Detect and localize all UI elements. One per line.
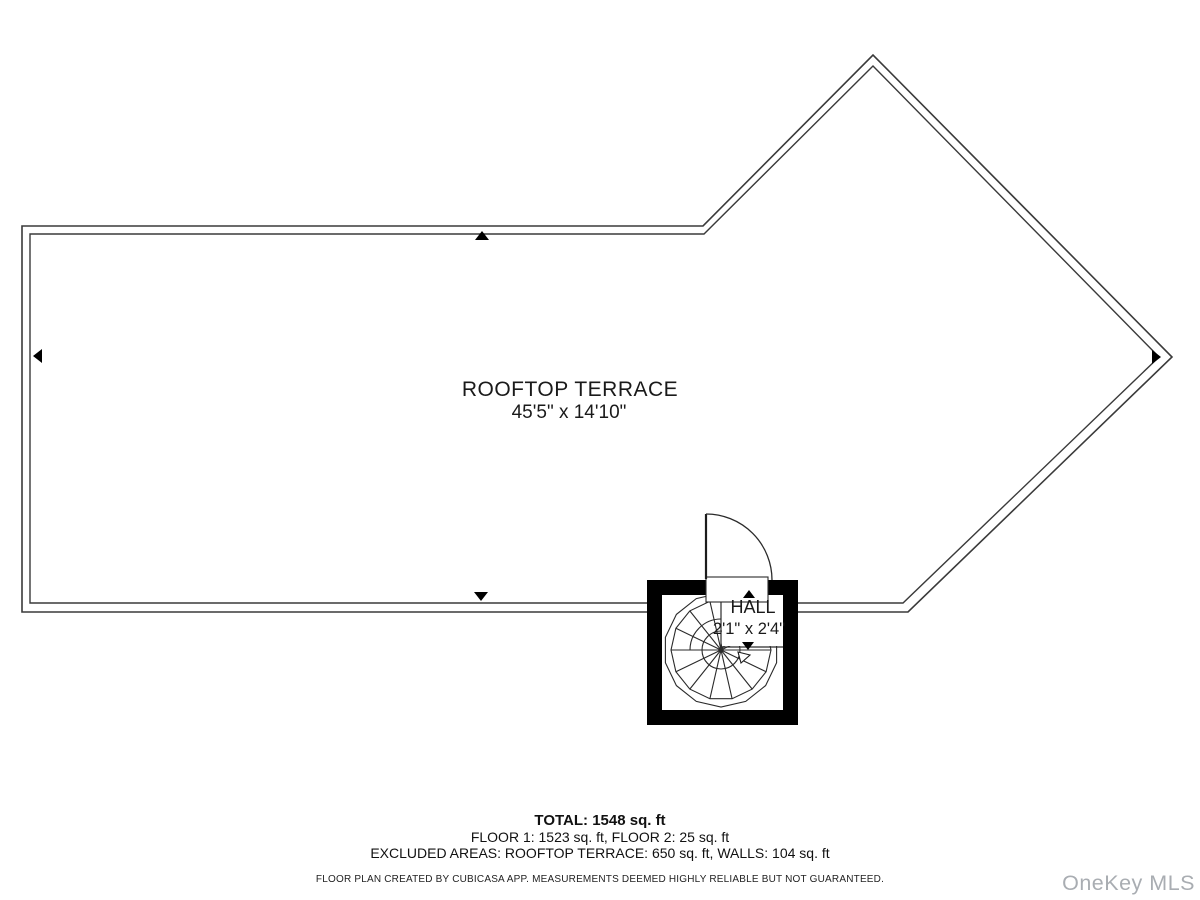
floor-plan-drawing: ROOFTOP TERRACE 45'5" x 14'10" — [0, 0, 1200, 900]
excluded-areas-text: EXCLUDED AREAS: ROOFTOP TERRACE: 650 sq.… — [0, 846, 1200, 861]
hall-dimensions: 2'1" x 2'4" — [713, 620, 785, 638]
floor-plan-page: ROOFTOP TERRACE 45'5" x 14'10" — [0, 0, 1200, 900]
disclaimer-text: FLOOR PLAN CREATED BY CUBICASA APP. MEAS… — [0, 874, 1200, 885]
terrace-outline-outer — [22, 55, 1172, 612]
onekey-mls-watermark: OneKey MLS — [1062, 871, 1195, 896]
floor-areas-text: FLOOR 1: 1523 sq. ft, FLOOR 2: 25 sq. ft — [0, 830, 1200, 845]
total-area-text: TOTAL: 1548 sq. ft — [0, 813, 1200, 829]
terrace-label: ROOFTOP TERRACE — [462, 378, 678, 401]
hall-label: HALL — [730, 597, 775, 617]
terrace-dimensions: 45'5" x 14'10" — [512, 402, 627, 423]
terrace-outline — [22, 55, 1172, 612]
area-summary: TOTAL: 1548 sq. ft FLOOR 1: 1523 sq. ft,… — [0, 813, 1200, 885]
